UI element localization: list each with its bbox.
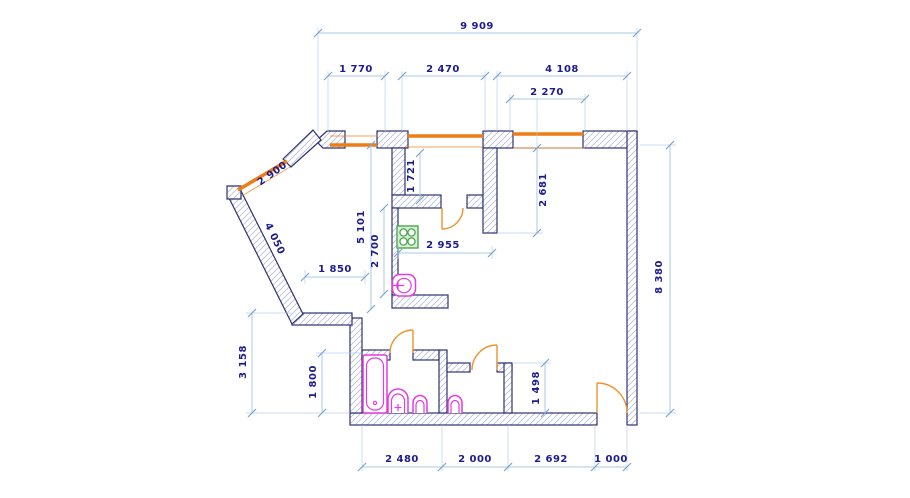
door-bathroom-arc [390, 330, 413, 353]
toilet-wc [448, 396, 462, 413]
door-balcony-arc [442, 208, 463, 229]
wall-wc-top-left [447, 363, 470, 372]
dim-label-bottom-seg-1: 2 480 [385, 454, 419, 465]
dim-label-hall-width: 1 850 [318, 264, 352, 275]
wall-wc-right [504, 363, 512, 413]
wall-bathroom-top-right [413, 350, 439, 360]
walls [227, 130, 637, 425]
wall-top-pier-2 [483, 131, 513, 148]
dim-label-top-seg-mid: 2 470 [426, 64, 460, 75]
dim-label-bottom-seg-3: 2 692 [534, 454, 568, 465]
dim-label-top-window-right: 2 270 [530, 87, 564, 98]
bathtub [363, 355, 387, 413]
door-entry-arc [597, 383, 627, 413]
floor-plan-page: 9 909 1 770 2 470 4 108 2 270 2 900 4 05… [0, 0, 910, 498]
dim-label-overall-top: 9 909 [460, 21, 494, 32]
dim-label-hall-depth: 5 101 [356, 210, 367, 244]
wall-upper-diagonal [283, 130, 321, 167]
wall-top-pier-1 [377, 131, 408, 148]
dim-label-bathroom-depth: 1 800 [308, 365, 319, 399]
wall-lower-diagonal [229, 191, 303, 324]
dim-label-lower-nook-depth: 1 498 [531, 371, 542, 405]
kitchen-sink [392, 275, 416, 297]
wall-bottom [350, 413, 597, 425]
wall-bath-left [350, 318, 362, 413]
wall-kitchen-top-right [467, 195, 483, 208]
wall-kitchen-right [483, 148, 497, 233]
toilet-bathroom [413, 396, 427, 413]
dim-label-left-lower-height: 3 158 [238, 345, 249, 379]
wall-kitchen-top-left [392, 195, 441, 208]
dim-label-living-nook-depth: 2 681 [538, 173, 549, 207]
wall-right [627, 131, 637, 425]
dim-label-kitchen-depth: 2 700 [370, 234, 381, 268]
dim-label-kitchen-width: 2 955 [426, 240, 460, 251]
wall-bath-wc-divider [439, 350, 447, 413]
floor-plan-canvas: 9 909 1 770 2 470 4 108 2 270 2 900 4 05… [0, 0, 910, 498]
wall-balcony-left [392, 148, 405, 195]
stove [397, 226, 418, 248]
washbasin [388, 389, 408, 413]
dim-label-top-seg-left: 1 770 [339, 64, 373, 75]
dim-label-top-seg-right: 4 108 [545, 64, 579, 75]
door-wc-arc [472, 345, 497, 370]
dim-label-balcony-depth: 1 721 [406, 159, 417, 193]
dim-label-overall-right: 8 380 [654, 260, 665, 294]
dim-label-diagonal-window: 2 900 [256, 160, 290, 189]
wall-kitchen-bottom [392, 295, 448, 308]
dim-label-bottom-seg-2: 2 000 [458, 454, 492, 465]
dim-label-bottom-seg-4: 1 000 [594, 454, 628, 465]
